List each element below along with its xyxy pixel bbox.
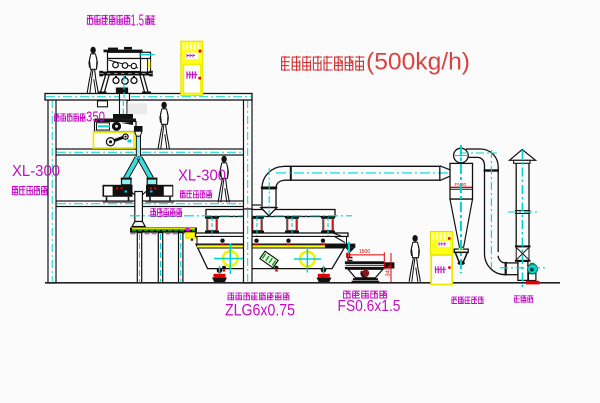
svg-text:FS0.6x1.5: FS0.6x1.5 [338, 298, 401, 315]
svg-text:XL-300: XL-300 [12, 163, 60, 180]
svg-text:(500kg/h): (500kg/h) [366, 49, 470, 76]
svg-text:340: 340 [386, 267, 392, 276]
svg-text:350: 350 [86, 109, 105, 126]
svg-text:1.5: 1.5 [131, 13, 145, 30]
svg-text:1500: 1500 [359, 249, 370, 255]
svg-text:ZLG6x0.75: ZLG6x0.75 [225, 302, 295, 320]
svg-text:XL-300: XL-300 [178, 168, 226, 185]
